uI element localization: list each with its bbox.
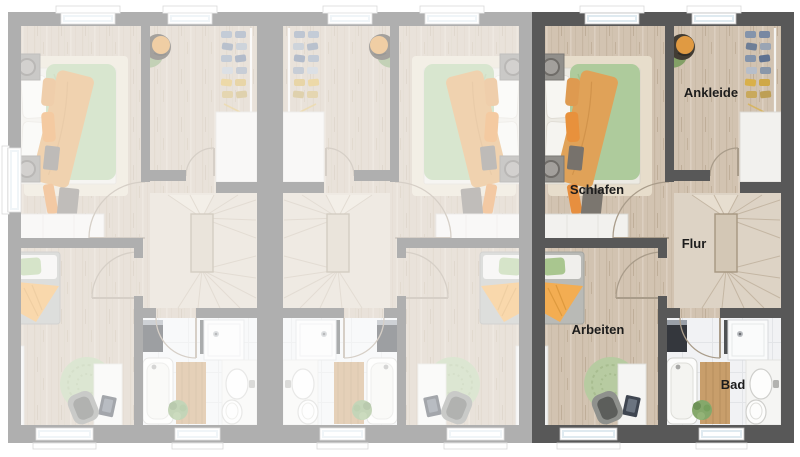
room-label-ankleide: Ankleide	[684, 85, 738, 100]
room-label-flur: Flur	[682, 236, 707, 251]
floorplan-svg: Schlafen Ankleide Flur Arbeiten Bad	[0, 0, 800, 457]
fade-overlay	[8, 12, 532, 443]
room-label-schlafen: Schlafen	[570, 182, 624, 197]
room-label-arbeiten: Arbeiten	[572, 322, 625, 337]
floorplan-image: Schlafen Ankleide Flur Arbeiten Bad	[0, 0, 800, 457]
unit-right-highlighted	[532, 6, 794, 449]
room-label-bad: Bad	[721, 377, 746, 392]
